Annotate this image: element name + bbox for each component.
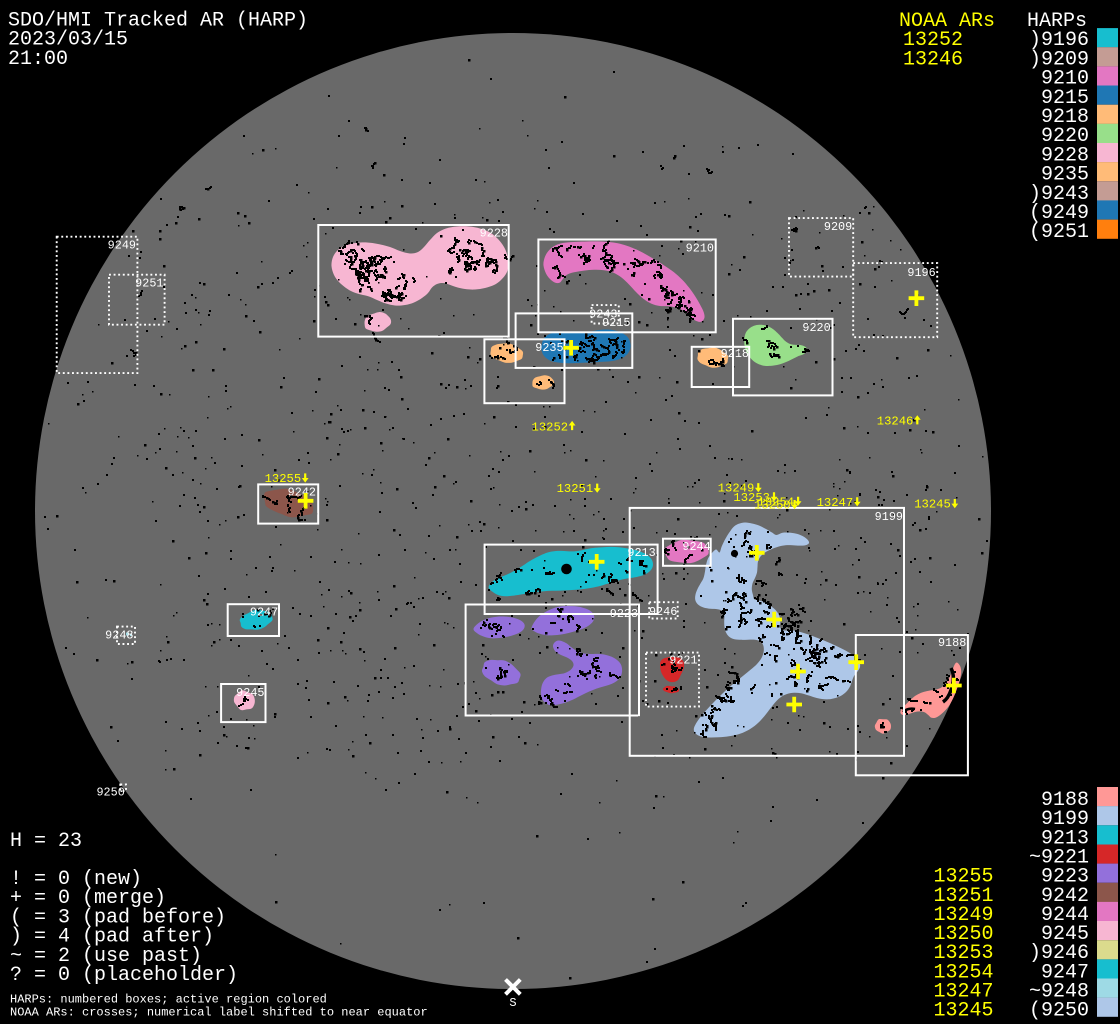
svg-text:H = 23: H = 23 [10, 830, 82, 853]
svg-text:9213: 9213 [627, 546, 655, 560]
svg-text:13246: 13246 [877, 415, 914, 429]
svg-text:13254: 13254 [758, 495, 795, 509]
svg-text:21:00: 21:00 [8, 48, 68, 71]
svg-text:HARPs: numbered boxes; active: HARPs: numbered boxes; active region col… [10, 993, 327, 1007]
svg-text:13247: 13247 [817, 496, 854, 510]
svg-text:(9251: (9251 [1029, 221, 1089, 244]
svg-text:9235: 9235 [535, 341, 563, 355]
svg-text:9248: 9248 [105, 629, 133, 643]
svg-text:9199: 9199 [875, 510, 903, 524]
svg-text:9223: 9223 [610, 607, 638, 621]
svg-text:9250: 9250 [96, 786, 124, 800]
svg-text:S: S [509, 996, 516, 1010]
svg-text:9209: 9209 [824, 220, 852, 234]
svg-text:9245: 9245 [236, 686, 264, 700]
svg-text:9246: 9246 [649, 605, 677, 619]
svg-text:9244: 9244 [682, 540, 710, 554]
svg-text:13251: 13251 [557, 482, 594, 496]
svg-text:13245: 13245 [914, 498, 951, 512]
svg-text:13252: 13252 [532, 420, 569, 434]
svg-text:9210: 9210 [686, 241, 714, 255]
svg-text:13255: 13255 [265, 472, 302, 486]
svg-text:9243: 9243 [589, 307, 617, 321]
svg-text:9242: 9242 [288, 486, 316, 500]
svg-text:9188: 9188 [938, 636, 966, 650]
svg-text:NOAA ARs: crosses; numerical l: NOAA ARs: crosses; numerical label shift… [10, 1006, 428, 1020]
svg-text:9228: 9228 [480, 226, 508, 240]
svg-text:9220: 9220 [802, 321, 830, 335]
svg-text:? = 0 (placeholder): ? = 0 (placeholder) [10, 964, 238, 987]
svg-text:9249: 9249 [108, 239, 136, 253]
svg-text:9218: 9218 [721, 347, 749, 361]
svg-text:9251: 9251 [135, 277, 163, 291]
svg-text:9247: 9247 [250, 606, 278, 620]
svg-text:9196: 9196 [907, 266, 935, 280]
svg-text:13246: 13246 [903, 48, 963, 71]
svg-text:13245: 13245 [933, 1000, 993, 1023]
svg-text:9221: 9221 [669, 654, 697, 668]
svg-text:(9250: (9250 [1029, 1000, 1089, 1023]
